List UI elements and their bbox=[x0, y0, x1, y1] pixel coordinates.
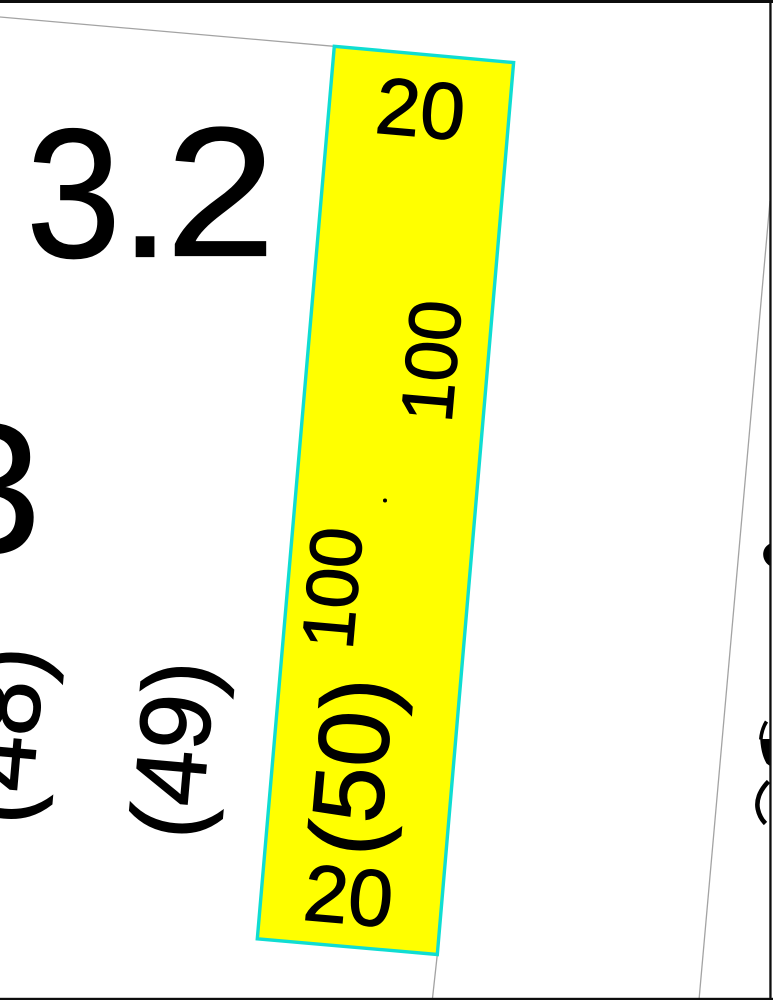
svg-text:100: 100 bbox=[386, 297, 477, 425]
svg-text:20: 20 bbox=[300, 848, 396, 944]
svg-text:(50): (50) bbox=[288, 673, 415, 860]
svg-text:2: 2 bbox=[166, 89, 276, 295]
svg-text:20: 20 bbox=[372, 61, 468, 157]
svg-text:3: 3 bbox=[26, 90, 121, 296]
svg-text:.: . bbox=[120, 90, 171, 296]
svg-text:100: 100 bbox=[287, 524, 378, 652]
svg-text:(49): (49) bbox=[110, 656, 237, 843]
svg-text:3: 3 bbox=[0, 385, 41, 591]
